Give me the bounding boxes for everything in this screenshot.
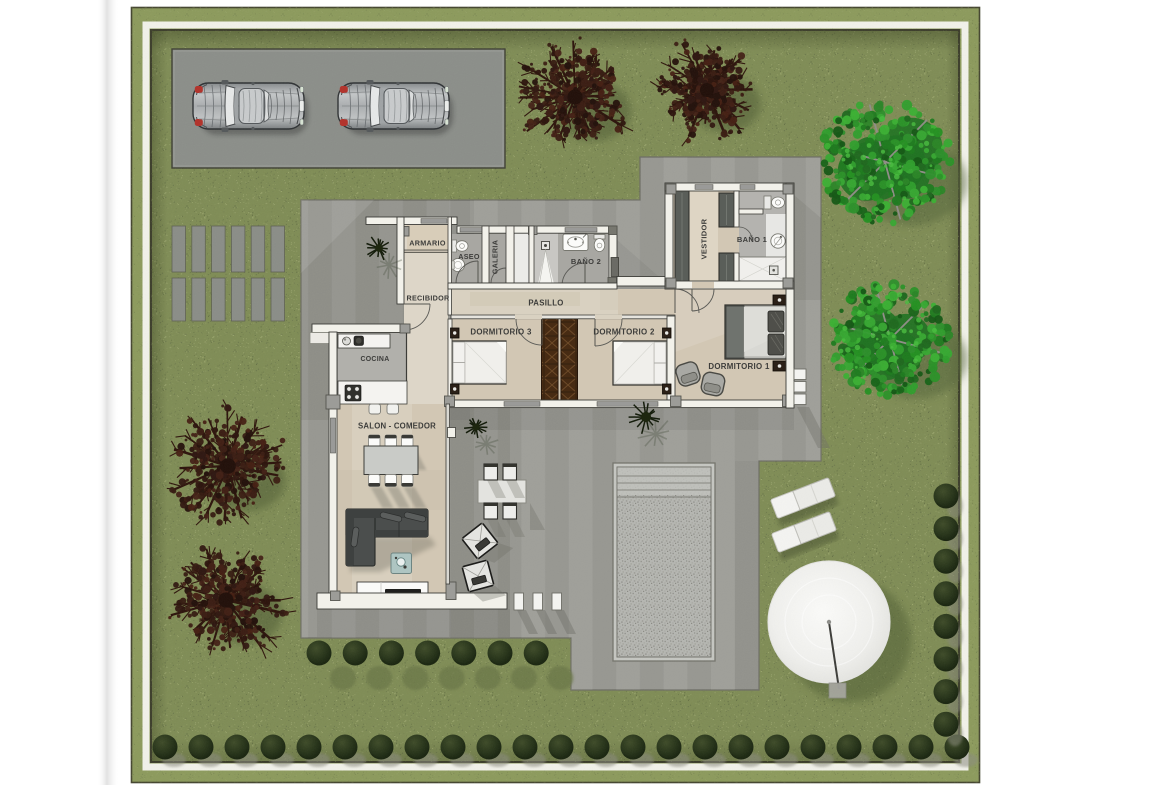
svg-text:PASILLO: PASILLO	[528, 299, 563, 308]
svg-text:RECIBIDOR: RECIBIDOR	[406, 294, 450, 303]
svg-text:SALON - COMEDOR: SALON - COMEDOR	[358, 422, 436, 431]
svg-text:ARMARIO: ARMARIO	[409, 239, 446, 248]
svg-text:VESTIDOR: VESTIDOR	[700, 218, 709, 259]
svg-text:COCINA: COCINA	[361, 356, 390, 363]
svg-text:DORMITORIO 2: DORMITORIO 2	[593, 328, 655, 337]
svg-text:GALERIA: GALERIA	[491, 240, 500, 274]
svg-text:BAÑO 1: BAÑO 1	[737, 235, 767, 244]
svg-text:BAÑO 2: BAÑO 2	[571, 257, 601, 266]
svg-text:DORMITORIO 3: DORMITORIO 3	[470, 328, 532, 337]
svg-text:ASEO: ASEO	[458, 252, 480, 261]
svg-text:DORMITORIO 1: DORMITORIO 1	[708, 362, 770, 371]
